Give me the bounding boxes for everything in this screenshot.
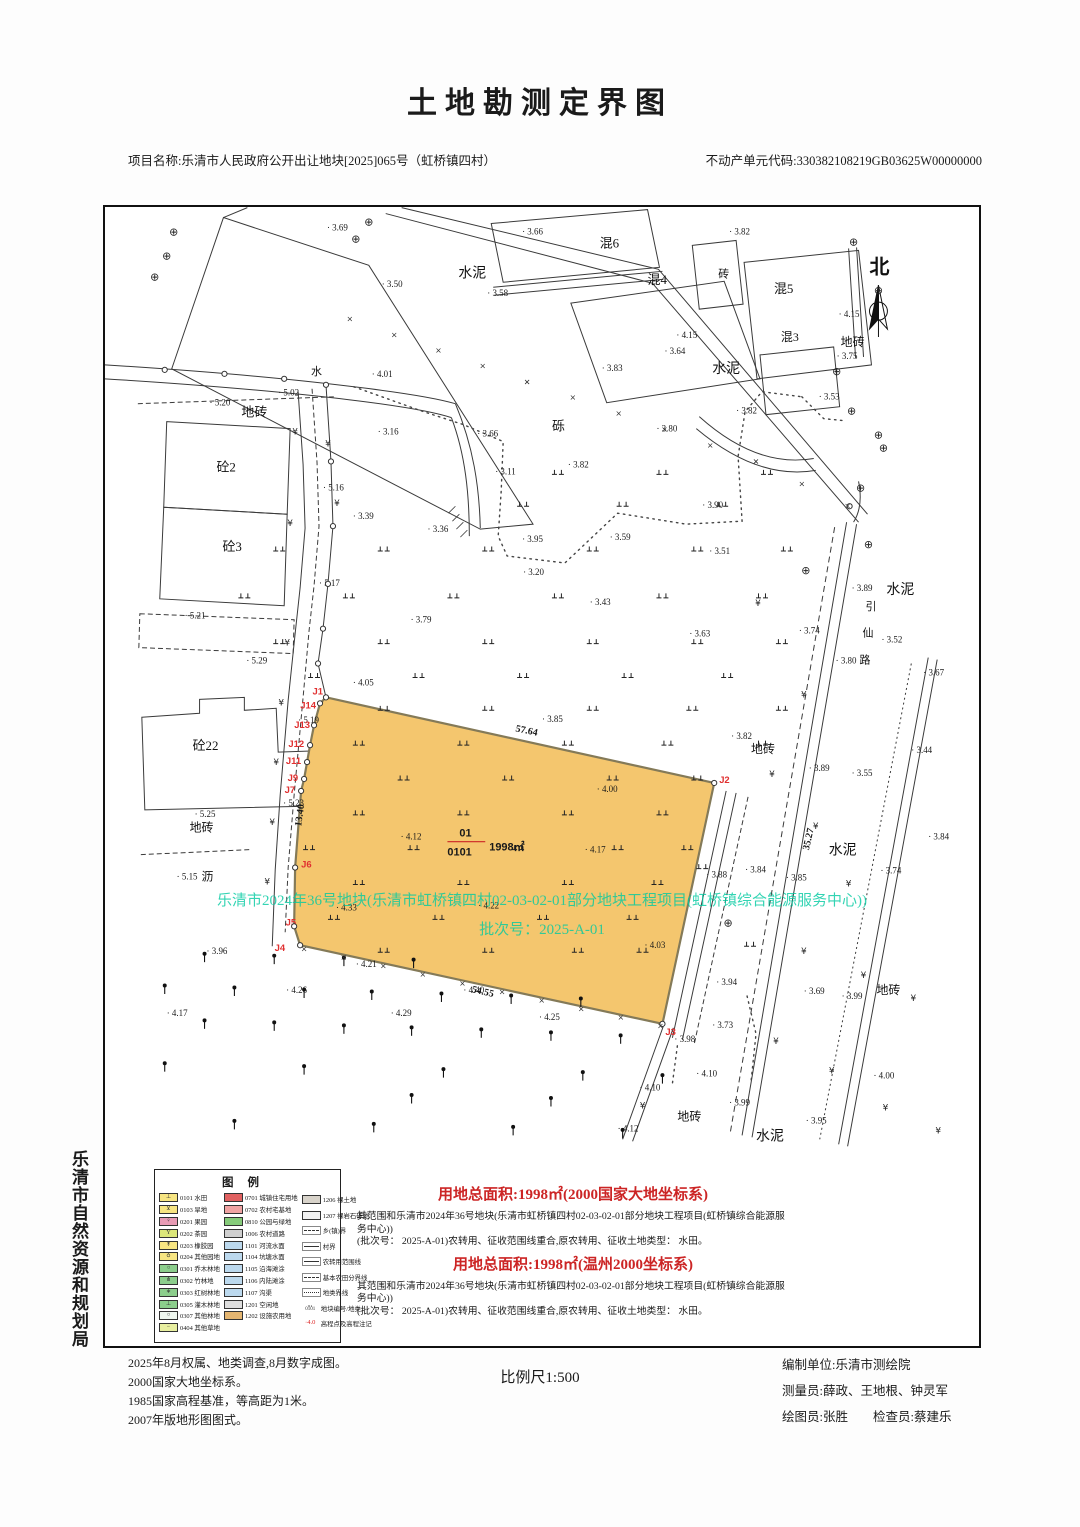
fence-tick: × <box>391 330 398 339</box>
paddy-field-icon <box>587 547 599 551</box>
boundary-point-marker <box>311 723 316 728</box>
paddy-field-icon <box>562 741 574 745</box>
street-lamp-icon: ¥ <box>264 878 270 888</box>
well-icon: ⊕ <box>856 481 865 494</box>
boundary-point-marker <box>292 924 297 929</box>
well-icon: ⊕ <box>832 365 841 378</box>
orchard-tree-icon <box>479 1027 483 1031</box>
footer-note-line: 1985国家高程基准，等高距为1米。 <box>128 1392 347 1411</box>
legend-item: 0810 公园与绿地 <box>224 1216 298 1228</box>
boundary-point-marker <box>222 371 227 376</box>
fence-tick: × <box>657 1021 664 1030</box>
building-hun6 <box>491 210 659 283</box>
map-legend: 图例 ⊥0101 水田⊻0103 旱地♀0201 果园Y0202 茶园↟0203… <box>154 1169 341 1343</box>
legend-item: ○0307 其他林地 <box>159 1310 220 1322</box>
fence-tick: × <box>538 996 545 1005</box>
legend-column-2: 0701 城镇住宅用地0702 农村宅基地0810 公园与绿地1006 农村道路… <box>220 1192 298 1340</box>
boundary-point-marker <box>328 459 333 464</box>
orchard-tree-icon <box>370 990 374 994</box>
elevation-label: · 4.12 <box>618 1123 639 1133</box>
footer-credits: 编制单位:乐清市测绘院测量员:薛政、王地根、钟灵军绘图员:张胜 检查员:蔡建乐 <box>782 1352 951 1430</box>
street-lamp-icon: ¥ <box>829 1067 835 1077</box>
paddy-field-icon <box>482 547 494 551</box>
elevation-label: · 3.58 <box>487 288 508 298</box>
feature-label: 地砖 <box>241 405 267 420</box>
boundary-point-marker <box>330 524 335 529</box>
legend-item: 1104 坑塘水面 <box>224 1251 298 1263</box>
orchard-tree-icon <box>410 1025 414 1029</box>
fence-tick: × <box>798 479 805 488</box>
elevation-label: · 3.36 <box>428 524 449 534</box>
feature-label: 沥 <box>202 870 214 884</box>
well-icon: ⊕ <box>162 249 171 262</box>
elevation-label: · 5.20 <box>210 398 231 408</box>
legend-item: 1105 沿海滩涂 <box>224 1263 298 1275</box>
land-class-boundary <box>354 387 802 563</box>
orchard-tree-icon <box>272 1020 276 1024</box>
legend-item: 1101 河流水面 <box>224 1239 298 1251</box>
street-lamp-icon: ¥ <box>269 818 275 828</box>
elevation-label: · 3.94 <box>716 977 737 987</box>
boundary-point-marker <box>323 695 328 700</box>
paddy-field-icon <box>587 706 599 710</box>
elevation-label: · 3.75 <box>837 351 858 361</box>
elevation-label: · 3.52 <box>881 635 902 645</box>
feature-label: 混3 <box>781 330 799 344</box>
feature-label: 砼22 <box>193 738 219 753</box>
elevation-label: · 3.99 <box>842 991 863 1001</box>
boundary-point-label: J11 <box>286 756 301 767</box>
north-label: 北 <box>870 255 890 278</box>
fence-tick: × <box>340 953 347 962</box>
street-lamp-icon: ¥ <box>935 1126 941 1136</box>
elevation-label: · 3.55 <box>852 768 873 778</box>
orchard-tree-icon <box>163 1061 167 1065</box>
feature-label: 混6 <box>600 235 620 250</box>
legend-item: ○0301 乔木林地 <box>159 1263 220 1275</box>
elevation-label: · 3.43 <box>590 597 611 607</box>
elevation-label: · 4.15 <box>676 330 697 340</box>
well-icon: ⊕ <box>351 232 360 245</box>
elevation-label: · 4.33 <box>336 902 357 912</box>
feature-label: 水泥 <box>756 1128 784 1144</box>
paddy-field-icon <box>696 864 708 868</box>
orchard-tree-icon <box>412 958 416 962</box>
street-lamp-icon: ¥ <box>278 698 284 708</box>
elevation-label: · 3.20 <box>523 567 544 577</box>
legend-item: 1201 空闲地 <box>224 1298 298 1310</box>
boundary-point-label: J12 <box>288 739 304 750</box>
legend-item: ♁0204 其他园地 <box>159 1251 220 1263</box>
boundary-point-label: J13 <box>294 720 310 731</box>
elevation-label: · 5.29 <box>246 656 267 666</box>
elevation-label: · 3.85 <box>786 873 807 883</box>
orchard-tree-icon <box>441 1067 445 1071</box>
fence-tick: × <box>618 1013 625 1022</box>
elevation-label: · 4.00 <box>873 1071 894 1081</box>
building-hun3 <box>760 347 840 415</box>
paddy-field-icon <box>756 593 768 597</box>
elevation-label: · 3.82 <box>736 406 757 416</box>
elevation-label: · 3.84 <box>928 832 949 842</box>
elevation-label: · 3.69 <box>804 986 825 996</box>
paddy-field-icon <box>587 639 599 643</box>
paddy-field-icon <box>691 639 703 643</box>
footer-credit-line: 测量员:薛政、王地根、钟灵军 <box>782 1378 951 1404</box>
elevation-label: · 3.16 <box>378 427 399 437</box>
orchard-tree-icon <box>511 1125 515 1129</box>
street-lamp-icon: ¥ <box>846 879 852 889</box>
legend-item: ↟0203 橡胶园 <box>159 1239 220 1251</box>
orchard-tree-icon <box>163 984 167 988</box>
street-lamp-icon: ¥ <box>284 639 290 649</box>
well-icon: ⊕ <box>801 564 810 577</box>
elevation-label: · 3.96 <box>207 946 228 956</box>
street-lamp-icon: ¥ <box>769 770 775 780</box>
fence-tick: × <box>524 377 531 386</box>
orchard-tree-icon <box>439 992 443 996</box>
well-icon: ⊕ <box>724 916 733 929</box>
elevation-label: · 3.50 <box>382 279 403 289</box>
footer-note-line: 2007年版地形图图式。 <box>128 1411 347 1430</box>
boundary-point-label: J9 <box>288 773 299 784</box>
feature-label: 混4 <box>648 272 668 287</box>
elevation-label: · 3.79 <box>411 615 432 625</box>
legend-title: 图例 <box>155 1174 340 1190</box>
highlighted-parcel[interactable] <box>294 697 714 1024</box>
fence-tick: × <box>347 315 354 324</box>
elevation-label: · 3.99 <box>729 1097 750 1107</box>
orchard-tree-icon <box>372 1122 376 1126</box>
orchard-tree-icon <box>549 1030 553 1034</box>
well-icon: ⊕ <box>864 538 873 551</box>
boundary-point-marker <box>315 661 320 666</box>
legend-item: ∗0303 红树林地 <box>159 1286 220 1298</box>
map-canvas: · 3.69· 3.82· 3.50· 3.58· 3.66· 4.15· 3.… <box>103 205 981 1348</box>
elevation-label: · 3.64 <box>664 346 685 356</box>
well-icon: ⊕ <box>874 429 883 442</box>
paddy-field-icon <box>482 639 494 643</box>
legend-item: ⊻0103 旱地 <box>159 1204 220 1216</box>
elevation-label: · 3.84 <box>745 865 766 875</box>
orchard-tree-icon <box>509 994 513 998</box>
elevation-label: · 3.69 <box>327 222 348 232</box>
legend-item: 1106 内陆滩涂 <box>224 1275 298 1287</box>
elevation-label: · 3.80 <box>836 656 857 666</box>
feature-label: 水 <box>311 365 322 378</box>
legend-item: −0404 其他草地 <box>159 1322 220 1334</box>
fence-tick: × <box>844 502 851 511</box>
feature-label: 水泥 <box>829 843 857 859</box>
fence-tick: × <box>301 945 308 954</box>
elevation-label: · 4.03 <box>645 940 666 950</box>
orchard-tree-icon <box>342 1023 346 1027</box>
road-name-char: 路 <box>860 654 871 667</box>
orchard-tree-icon <box>232 986 236 990</box>
fence-tick: × <box>707 441 714 450</box>
paddy-field-icon <box>343 593 355 597</box>
paddy-field-icon <box>691 547 703 551</box>
orchard-tree-icon <box>621 1128 625 1132</box>
elevation-label: · 3.74 <box>880 866 901 876</box>
area-note: 其范围和乐清市2024年36号地块(乐清市虹桥镇四村02-03-02-01部分地… <box>357 1281 789 1319</box>
feature-label: 砼3 <box>222 539 241 554</box>
paddy-field-icon <box>413 673 425 677</box>
parcel-area-label: 1998㎡ <box>489 840 524 854</box>
paddy-field-icon <box>744 942 756 946</box>
elevation-label: · 4.05 <box>353 677 374 687</box>
paddy-field-icon <box>721 673 733 677</box>
elevation-label: · 3.95 <box>806 1115 827 1125</box>
paddy-field-icon <box>617 502 629 506</box>
elevation-label: · 3.44 <box>911 745 932 755</box>
street-lamp-icon: ¥ <box>910 994 916 1004</box>
orchard-tree-icon <box>302 1064 306 1068</box>
boundary-point-label: J6 <box>301 860 311 871</box>
area-total-title: 用地总面积:1998㎡(温州2000坐标系) <box>357 1253 789 1274</box>
street-lamp-icon: ¥ <box>813 822 819 832</box>
elevation-label: · 3.73 <box>712 1020 733 1030</box>
boundary-point-label: J4 <box>275 943 286 954</box>
paddy-field-icon <box>238 593 250 597</box>
road-edge-line <box>318 385 333 698</box>
paddy-field-icon <box>273 547 285 551</box>
paddy-field-icon <box>776 639 788 643</box>
paddy-field-icon <box>482 706 494 710</box>
elevation-label: · 3.89 <box>809 763 830 773</box>
boundary-point-marker <box>320 626 325 631</box>
orchard-tree-icon <box>619 1033 623 1037</box>
feature-label: 地砖 <box>751 741 775 756</box>
fence-tick: × <box>615 409 622 418</box>
elevation-label: · 3.11 <box>495 466 516 476</box>
feature-label: 地砖 <box>190 820 214 835</box>
legend-item: Y0202 茶园 <box>159 1227 220 1239</box>
legend-item: 0701 城镇住宅用地 <box>224 1192 298 1204</box>
feature-label: 水泥 <box>458 265 486 281</box>
well-icon: ⊕ <box>849 235 858 248</box>
elevation-label: · 4.17 <box>585 845 606 855</box>
paddy-field-icon <box>378 639 390 643</box>
feature-label: 砼2 <box>216 459 235 474</box>
fence-tick: × <box>479 362 486 371</box>
paddy-field-icon <box>552 593 564 597</box>
street-lamp-icon: ¥ <box>801 690 807 700</box>
fence-tick: × <box>380 962 387 971</box>
street-lamp-icon: ¥ <box>801 947 807 957</box>
elevation-label: · 4.15 <box>839 309 860 319</box>
elevation-label: · 5.15 <box>177 872 198 882</box>
building-hun4 <box>571 281 760 402</box>
boundary-point-marker <box>712 780 717 785</box>
elevation-label: · 3.90 <box>702 500 723 510</box>
well-icon: ⊕ <box>879 441 888 454</box>
elevation-label: · 4.29 <box>391 1008 412 1018</box>
fence-tick: × <box>459 979 466 988</box>
boundary-point-marker <box>307 743 312 748</box>
area-note: 其范围和乐清市2024年36号地块(乐清市虹桥镇四村02-03-02-01部分地… <box>357 1211 789 1249</box>
boundary-point-marker <box>304 759 309 764</box>
road-name-char: 引 <box>866 599 877 613</box>
parcel-plot-no: 01 <box>459 828 471 840</box>
elevation-label: · 3.82 <box>729 226 750 236</box>
legend-item: 1006 农村道路 <box>224 1227 298 1239</box>
fence-tick: × <box>753 457 760 466</box>
boundary-point-marker <box>325 581 330 586</box>
orchard-tree-icon <box>302 988 306 992</box>
elevation-label: · 3.82 <box>731 731 752 741</box>
feature-label: 地砖 <box>841 334 865 349</box>
paddy-field-icon <box>517 673 529 677</box>
feature-label: 地砖 <box>677 1108 701 1123</box>
elevation-label: · 3.89 <box>852 583 873 593</box>
elevation-label: · 4.00 <box>597 784 618 794</box>
well-icon: ⊕ <box>364 216 373 229</box>
paddy-field-icon <box>686 706 698 710</box>
paddy-field-icon <box>622 673 634 677</box>
elevation-label: · 3.95 <box>522 534 543 544</box>
boundary-point-marker <box>323 382 328 387</box>
fence-tick: × <box>420 970 427 979</box>
footer-credit-line: 绘图员:张胜 检查员:蔡建乐 <box>782 1404 951 1430</box>
boundary-point-label: J7 <box>285 785 295 796</box>
legend-item: ⊥0305 灌木林地 <box>159 1298 220 1310</box>
orchard-tree-icon <box>579 996 583 1000</box>
street-lamp-icon: ¥ <box>773 1037 779 1047</box>
building-tong3 <box>160 507 287 606</box>
elevation-label: · 5.16 <box>323 482 344 492</box>
elevation-label: · 3.63 <box>689 629 710 639</box>
elevation-label: · 5.21 <box>185 611 206 621</box>
street-lamp-icon: ¥ <box>287 519 293 529</box>
elevation-label: · 3.51 <box>709 546 730 556</box>
boundary-point-label: J3 <box>665 1027 676 1038</box>
paddy-field-icon <box>656 470 668 474</box>
paddy-field-icon <box>781 547 793 551</box>
orchard-tree-icon <box>581 1070 585 1074</box>
elevation-label: · 4.25 <box>539 1012 560 1022</box>
page-title: 土地勘测定界图 <box>0 78 1080 122</box>
project-name: 项目名称:乐清市人民政府公开出让地块[2025]065号（虹桥镇四村） <box>128 150 496 169</box>
elevation-label: · 5.02 <box>278 388 299 398</box>
fence-tick: × <box>435 346 442 355</box>
elevation-label: · 4.21 <box>356 959 377 969</box>
paddy-field-icon <box>656 593 668 597</box>
street-lamp-icon: ¥ <box>325 440 331 450</box>
paddy-field-icon <box>661 741 673 745</box>
orchard-tree-icon <box>410 1093 414 1097</box>
elevation-label: · 3.39 <box>353 511 374 521</box>
street-lamp-icon: ¥ <box>334 499 340 509</box>
elevation-label: · 4.17 <box>167 1008 188 1018</box>
well-icon: ⊕ <box>169 225 178 238</box>
street-lamp-icon: ¥ <box>292 428 298 438</box>
street-lamp-icon: ¥ <box>640 1101 646 1111</box>
paddy-field-icon <box>308 673 320 677</box>
street-lamp-icon: ¥ <box>755 599 761 609</box>
elevation-label: · 4.10 <box>696 1069 717 1079</box>
feature-label: 水泥 <box>886 582 914 598</box>
orchard-tree-icon <box>203 952 207 956</box>
paddy-field-icon <box>447 593 459 597</box>
paddy-field-icon <box>761 470 773 474</box>
street-lamp-icon: ¥ <box>273 758 279 768</box>
road-name-char: 仙 <box>863 627 874 640</box>
estate-unit-code: 不动产单元代码:330382108219GB03625W00000000 <box>706 150 982 169</box>
orchard-tree-icon <box>272 954 276 958</box>
well-icon: ⊕ <box>847 405 856 418</box>
agency-vertical-label: 乐清市自然资源和规划局 <box>66 1150 91 1350</box>
legend-item: 0702 农村宅基地 <box>224 1204 298 1216</box>
well-icon: ⊕ <box>874 284 883 297</box>
elevation-label: · 3.88 <box>706 870 727 880</box>
legend-item: ⊥0101 水田 <box>159 1192 220 1204</box>
boundary-point-label: J2 <box>719 775 729 786</box>
fence-tick: × <box>661 425 668 434</box>
legend-item: ♀0201 果园 <box>159 1216 220 1228</box>
paddy-field-icon <box>776 706 788 710</box>
elevation-label: · 3.59 <box>610 532 631 542</box>
dimension-label: 57.64 <box>514 723 538 738</box>
elevation-label: · 3.66 <box>477 429 498 439</box>
elevation-label: · 3.53 <box>819 392 840 402</box>
elevation-label: · 3.67 <box>923 667 944 677</box>
street-lamp-icon: ¥ <box>861 971 867 981</box>
feature-label: 地砖 <box>876 982 900 997</box>
elevation-label: · 4.01 <box>372 369 393 379</box>
elevation-label: · 3.82 <box>568 459 589 469</box>
elevation-label: · 4.12 <box>401 832 422 842</box>
survey-sheet: 土地勘测定界图 项目名称:乐清市人民政府公开出让地块[2025]065号（虹桥镇… <box>0 0 1080 1527</box>
elevation-label: · 5.25 <box>195 809 216 819</box>
elevation-label: · 3.66 <box>522 226 543 236</box>
legend-column-1: ⊥0101 水田⊻0103 旱地♀0201 果园Y0202 茶园↟0203 橡胶… <box>155 1192 220 1340</box>
boundary-point-marker <box>317 701 322 706</box>
elevation-label: · 3.83 <box>602 363 623 373</box>
elevation-label: · 3.98 <box>674 1034 695 1044</box>
paddy-field-icon <box>552 470 564 474</box>
footer-credit-line: 编制单位:乐清市测绘院 <box>782 1352 951 1378</box>
boundary-point-marker <box>302 776 307 781</box>
fence-tick: × <box>570 393 577 402</box>
orchard-tree-icon <box>203 1018 207 1022</box>
area-total-title: 用地总面积:1998㎡(2000国家大地坐标系) <box>357 1183 789 1204</box>
boundary-point-marker <box>293 865 298 870</box>
orchard-tree-icon <box>660 1073 664 1077</box>
elevation-label: · 3.74 <box>799 626 820 636</box>
parcel-land-code: 0101 <box>447 847 471 859</box>
feature-label: 砖 <box>718 266 729 280</box>
feature-label: 水泥 <box>712 361 740 377</box>
fence-tick: × <box>578 1004 585 1013</box>
feature-label: 混5 <box>774 281 793 296</box>
street-lamp-icon: ¥ <box>883 1103 889 1113</box>
paddy-field-icon <box>378 547 390 551</box>
orchard-tree-icon <box>232 1119 236 1123</box>
boundary-point-marker <box>299 788 304 793</box>
orchard-tree-icon <box>549 1096 553 1100</box>
boundary-point-label: J14 <box>300 700 316 711</box>
subheader: 项目名称:乐清市人民政府公开出让地块[2025]065号（虹桥镇四村） 不动产单… <box>128 150 982 169</box>
elevation-label: · 4.22 <box>478 900 499 910</box>
legend-item: 1202 设施农用地 <box>224 1310 298 1322</box>
boundary-point-marker <box>162 367 167 372</box>
area-statements: 用地总面积:1998㎡(2000国家大地坐标系)其范围和乐清市2024年36号地… <box>357 1179 789 1321</box>
feature-label: 砾 <box>552 419 565 434</box>
well-icon: ⊕ <box>150 270 159 283</box>
elevation-label: · 4.10 <box>640 1083 661 1093</box>
legend-item: ⋔0302 竹林地 <box>159 1275 220 1287</box>
